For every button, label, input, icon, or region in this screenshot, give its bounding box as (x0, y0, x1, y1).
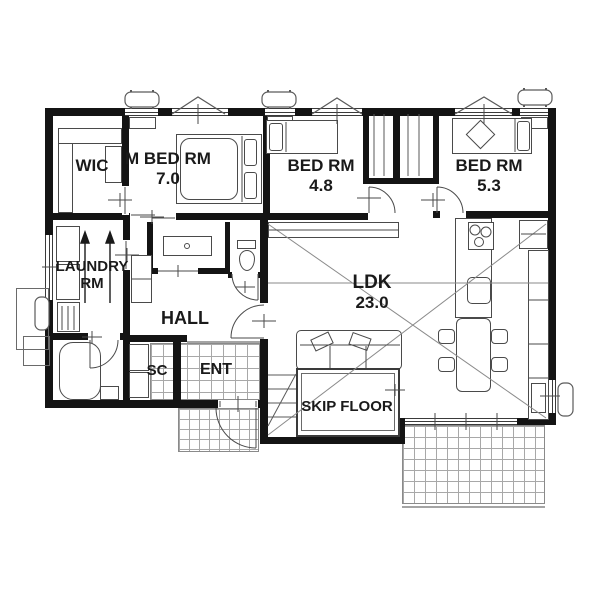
kitchen-counter-ne (519, 220, 548, 249)
room-label-ldk-name: LDK (327, 272, 417, 294)
toilet-tank (237, 240, 256, 249)
terrace-deck (402, 425, 545, 504)
wall-closet-mid (393, 108, 400, 184)
floor-plan: WIC M BED RM 7.0 BED RM 4.8 BED RM 5.3 L… (0, 0, 600, 600)
vanity-basin-icon (163, 236, 212, 256)
wall-hall-sc-divider (123, 335, 187, 342)
room-label-bed1-name: BED RM (271, 156, 371, 176)
porch-tile-floor (178, 408, 259, 452)
dining-chair-4 (491, 357, 508, 372)
window-bed2 (455, 108, 512, 116)
stove-icon (468, 222, 494, 250)
dining-table-icon (456, 318, 491, 392)
opening-wic-door (122, 186, 129, 215)
sofa-icon (296, 330, 402, 370)
room-label-bed1-area: 4.8 (271, 176, 371, 196)
room-label-skip-floor: SKIP FLOOR (289, 398, 405, 415)
dining-chair-3 (491, 329, 508, 344)
single-bed-2-pillow (517, 121, 530, 151)
room-label-ent: ENT (185, 361, 247, 379)
refrigerator-icon (531, 383, 546, 413)
opening-ldk-door (260, 303, 268, 339)
dining-chair-2 (438, 357, 455, 372)
wall-closet-bottom (363, 178, 439, 184)
window-bed1 (312, 108, 362, 116)
room-label-laundry: LAUNDRY RM (51, 258, 133, 293)
opening-bed2-door (440, 211, 466, 218)
window-top-1 (125, 108, 158, 116)
window-mbed (172, 108, 228, 116)
window-top-3 (520, 108, 548, 116)
outdoor-storage-box (23, 336, 50, 366)
room-label-hall: HALL (145, 308, 225, 329)
room-label-bed2-area: 5.3 (439, 176, 539, 196)
window-ldk-south (405, 418, 517, 425)
opening-bath-door (88, 333, 120, 340)
plan-linework (0, 0, 600, 600)
single-bed-1-pillow (269, 123, 283, 151)
window-top-2 (265, 108, 295, 116)
room-label-sc: SC (136, 362, 178, 379)
tv-board (268, 222, 399, 238)
room-label-wic: WIC (62, 156, 122, 176)
washing-machine-icon (57, 302, 80, 332)
wall-skip-bottom (260, 437, 405, 444)
laundry-cabinet-1 (56, 226, 80, 262)
room-label-mbed-name: M BED RM (118, 149, 218, 169)
kitchen-sink-icon (467, 277, 491, 304)
dining-chair-1 (438, 329, 455, 344)
opening-entrance-door (218, 400, 258, 408)
mbed-ac-indoor-unit-icon (129, 117, 156, 129)
wall-right (548, 108, 556, 425)
wic-shelf-top (58, 128, 122, 144)
room-label-ldk-area: 23.0 (327, 293, 417, 313)
room-label-bed2-name: BED RM (439, 156, 539, 176)
room-label-mbed-area: 7.0 (118, 169, 218, 189)
toilet-bowl-icon (239, 250, 255, 271)
bathtub-icon (59, 342, 101, 400)
opening-toilet-door (232, 272, 258, 278)
window-ldk-east (548, 380, 556, 413)
double-bed-pillow-2 (244, 172, 257, 199)
opening-mbed-sliding-door (130, 213, 176, 220)
opening-washroom-sliding-door (158, 268, 198, 274)
hall-closet (131, 255, 152, 303)
wall-mid-horizontal (45, 213, 368, 220)
wall-toilet-partition (225, 222, 230, 274)
bath-stool (100, 386, 119, 400)
double-bed-pillow-1 (244, 139, 257, 166)
